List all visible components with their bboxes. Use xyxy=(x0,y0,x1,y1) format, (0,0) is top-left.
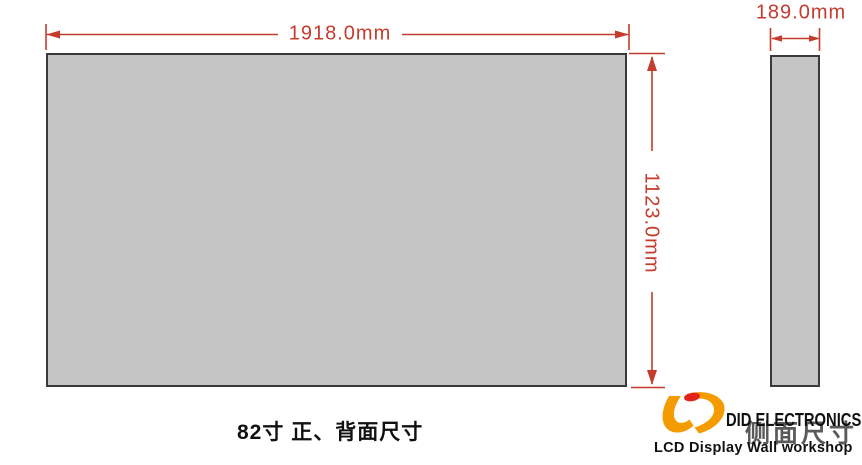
company-logo: DID ELECTRONICS LCD Display Wall worksho… xyxy=(650,386,862,461)
did-logo-icon xyxy=(655,391,727,437)
side-panel-rect xyxy=(770,55,820,387)
dimension-drawing: 1918.0mm 1123.0mm 189.0mm 82寸 正、背面尺寸 侧面尺… xyxy=(0,0,862,465)
logo-company-name: DID ELECTRONICS xyxy=(726,410,861,431)
front-view-caption: 82寸 正、背面尺寸 xyxy=(237,416,423,446)
front-height-dimension-label: 1123.0mm xyxy=(640,172,663,273)
logo-tagline: LCD Display Wall workshop xyxy=(654,440,853,456)
side-depth-dimension-label: 189.0mm xyxy=(756,2,846,25)
front-panel-rect xyxy=(46,53,627,387)
front-width-dimension-label: 1918.0mm xyxy=(289,23,392,46)
